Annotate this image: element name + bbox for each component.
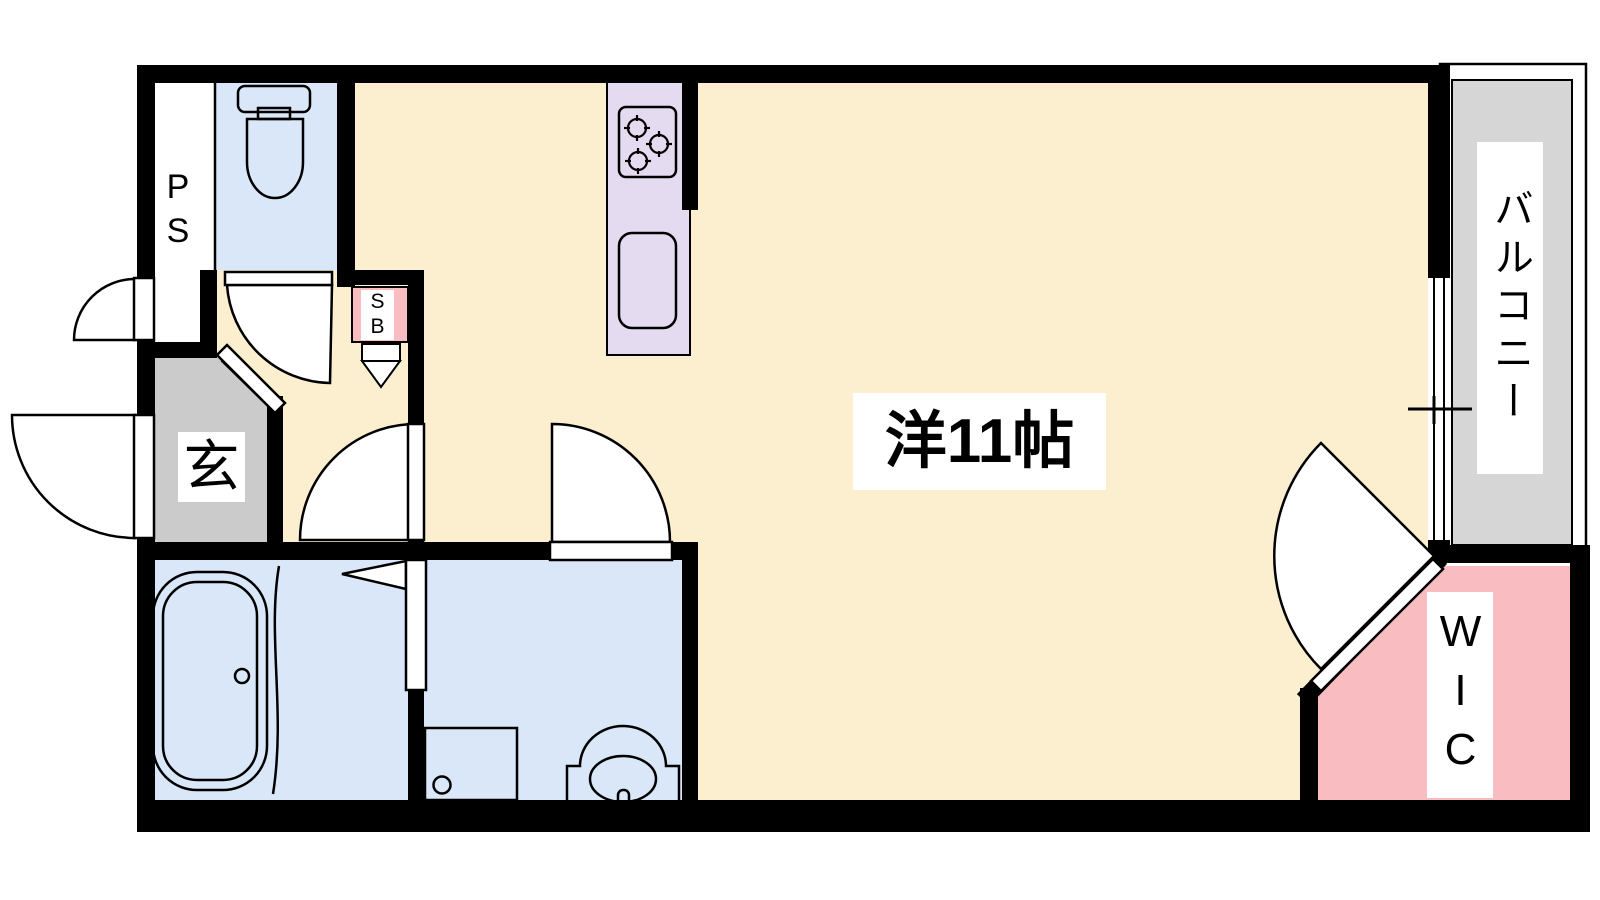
main-room-label: 洋11帖	[853, 393, 1106, 490]
bathroom-floor	[155, 560, 408, 800]
wic-label: WIC	[1427, 592, 1493, 798]
pipe-space-label: PS	[158, 162, 198, 262]
hall-door-leaf	[408, 424, 424, 540]
meter-box-door-leaf	[134, 278, 154, 340]
entrance-door-leaf	[134, 415, 154, 538]
shoe-box-arrow-body	[362, 344, 400, 361]
balcony-label: バルコニー	[1477, 142, 1543, 474]
genkan-label: 玄	[178, 432, 245, 502]
entrance-door-swing	[12, 415, 135, 538]
bath-opening	[406, 560, 426, 690]
toilet-door-leaf	[225, 272, 332, 285]
floorplan-canvas: PS SB 玄 洋11帖 バルコニー WIC	[0, 0, 1600, 900]
shoe-box-label: SB	[361, 290, 394, 340]
washroom-floor	[424, 560, 682, 800]
meter-box-door-swing	[74, 279, 135, 340]
washroom-door-leaf	[550, 542, 672, 560]
